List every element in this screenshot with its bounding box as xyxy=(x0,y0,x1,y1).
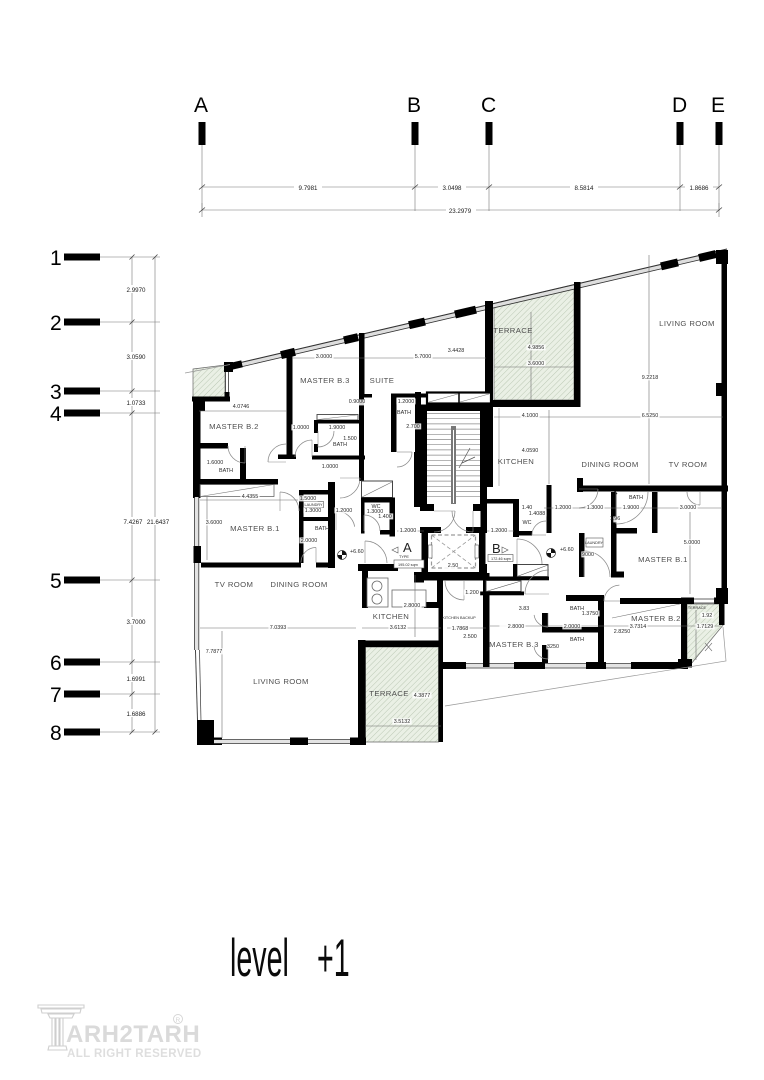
svg-text:2: 2 xyxy=(50,312,62,335)
svg-text:MASTER B.1: MASTER B.1 xyxy=(638,555,688,564)
svg-text:MASTER B.3: MASTER B.3 xyxy=(300,376,350,385)
svg-text:1.7129: 1.7129 xyxy=(697,624,714,630)
svg-text:5.0000: 5.0000 xyxy=(684,540,701,546)
svg-text:21.6437: 21.6437 xyxy=(147,519,170,526)
svg-text:MASTER B.1: MASTER B.1 xyxy=(230,524,280,533)
svg-text:TERRACE: TERRACE xyxy=(688,606,707,610)
svg-text:ALL RIGHT RESERVED: ALL RIGHT RESERVED xyxy=(67,1048,202,1060)
svg-text:2.50: 2.50 xyxy=(448,563,459,569)
svg-text:BATH: BATH xyxy=(397,410,411,416)
svg-text:4.0746: 4.0746 xyxy=(233,404,250,410)
svg-text:172.46 sqm: 172.46 sqm xyxy=(491,557,511,561)
svg-text:1.400: 1.400 xyxy=(378,514,392,520)
svg-text:7: 7 xyxy=(50,684,62,707)
svg-text:MASTER B.2: MASTER B.2 xyxy=(209,422,259,431)
svg-text:ARH2TARH: ARH2TARH xyxy=(66,1021,200,1048)
svg-text:8: 8 xyxy=(50,722,62,745)
svg-text:1.92: 1.92 xyxy=(702,613,713,619)
svg-text:DINING ROOM: DINING ROOM xyxy=(581,460,638,469)
svg-text:1.9000: 1.9000 xyxy=(623,505,640,511)
svg-text:4.3877: 4.3877 xyxy=(414,693,431,699)
svg-text:1.6886: 1.6886 xyxy=(127,711,146,718)
svg-text:KITCHEN BACKUP: KITCHEN BACKUP xyxy=(442,616,476,620)
svg-text:1.200: 1.200 xyxy=(465,590,479,596)
svg-text:7.0393: 7.0393 xyxy=(270,625,287,631)
svg-text:4.4355: 4.4355 xyxy=(242,494,259,500)
svg-text:5.7000: 5.7000 xyxy=(415,354,432,360)
svg-text:1.8686: 1.8686 xyxy=(690,185,709,192)
svg-text:TV ROOM: TV ROOM xyxy=(215,580,254,589)
svg-text:195.02 sqm: 195.02 sqm xyxy=(398,563,418,567)
svg-text:SUITE: SUITE xyxy=(370,376,395,385)
svg-text:TYPE: TYPE xyxy=(399,555,409,559)
svg-text:KITCHEN: KITCHEN xyxy=(373,612,410,621)
svg-text:3.0000: 3.0000 xyxy=(316,354,333,360)
svg-text:3.7314: 3.7314 xyxy=(630,624,647,630)
svg-text:4: 4 xyxy=(50,403,62,426)
svg-text:BATH: BATH xyxy=(570,606,584,612)
svg-text:8.5814: 8.5814 xyxy=(575,185,594,192)
svg-text:+6.60: +6.60 xyxy=(350,549,364,555)
svg-text:A: A xyxy=(403,540,412,555)
svg-text:0.9000: 0.9000 xyxy=(349,399,366,405)
svg-text:KITCHEN: KITCHEN xyxy=(498,457,535,466)
svg-text:WC: WC xyxy=(372,504,381,510)
svg-text:LIVING ROOM: LIVING ROOM xyxy=(253,677,309,686)
svg-text:6.5250: 6.5250 xyxy=(642,413,659,419)
svg-text:1.7868: 1.7868 xyxy=(452,626,469,632)
svg-text:2.700: 2.700 xyxy=(406,424,420,430)
svg-text:4.1000: 4.1000 xyxy=(522,413,539,419)
svg-text:E: E xyxy=(711,94,725,117)
svg-text:9.7981: 9.7981 xyxy=(299,185,318,192)
svg-text:BATH: BATH xyxy=(629,495,643,501)
svg-text:LAUNDRY: LAUNDRY xyxy=(304,503,323,507)
svg-text:9.2218: 9.2218 xyxy=(642,375,659,381)
svg-text:4.9856: 4.9856 xyxy=(528,345,545,351)
svg-text:WC: WC xyxy=(523,520,532,526)
svg-text:1.9000: 1.9000 xyxy=(329,425,346,431)
svg-text:1.0000: 1.0000 xyxy=(322,464,339,470)
svg-text:TERRACE: TERRACE xyxy=(369,689,409,698)
svg-text:1.6991: 1.6991 xyxy=(127,676,146,683)
svg-text:A: A xyxy=(194,94,208,117)
svg-text:B: B xyxy=(407,94,421,117)
svg-text:MASTER B.3: MASTER B.3 xyxy=(489,640,539,649)
svg-text:C: C xyxy=(481,94,496,117)
svg-text:23.2979: 23.2979 xyxy=(449,208,472,215)
svg-text:TV ROOM: TV ROOM xyxy=(669,460,708,469)
svg-text:BATH: BATH xyxy=(333,442,347,448)
svg-text:3.83: 3.83 xyxy=(519,606,530,612)
svg-text:3250: 3250 xyxy=(547,644,559,650)
svg-text:1.5000: 1.5000 xyxy=(300,496,317,502)
svg-text:BATH: BATH xyxy=(570,637,584,643)
svg-text:1.2000: 1.2000 xyxy=(491,528,508,534)
svg-text:1.0733: 1.0733 xyxy=(127,400,146,407)
svg-text:1.0000: 1.0000 xyxy=(293,425,310,431)
svg-text:1.6000: 1.6000 xyxy=(207,460,224,466)
svg-text:1.2000: 1.2000 xyxy=(555,505,572,511)
svg-text:3.6132: 3.6132 xyxy=(390,625,407,631)
svg-text:3: 3 xyxy=(50,381,62,404)
svg-text:2.0000: 2.0000 xyxy=(564,624,581,630)
svg-text:5: 5 xyxy=(50,570,62,593)
svg-text:2.8250: 2.8250 xyxy=(614,629,631,635)
svg-text:1: 1 xyxy=(50,247,62,270)
svg-text:B: B xyxy=(492,541,501,556)
svg-text:D: D xyxy=(672,94,687,117)
svg-text:3.0498: 3.0498 xyxy=(443,185,462,192)
svg-text:1.96: 1.96 xyxy=(610,516,621,522)
svg-text:2.8000: 2.8000 xyxy=(404,603,421,609)
svg-text:3.6000: 3.6000 xyxy=(206,520,223,526)
svg-text:DINING ROOM: DINING ROOM xyxy=(270,580,327,589)
svg-text:+1: +1 xyxy=(317,929,350,989)
svg-text:1.2000: 1.2000 xyxy=(336,508,353,514)
svg-text:3.5132: 3.5132 xyxy=(394,719,411,725)
svg-text:1.3000: 1.3000 xyxy=(305,508,322,514)
svg-text:1.4088: 1.4088 xyxy=(529,511,546,517)
svg-text:3.4428: 3.4428 xyxy=(448,348,465,354)
svg-text:BATH: BATH xyxy=(315,526,329,532)
svg-text:6: 6 xyxy=(50,652,62,675)
svg-text:2.8000: 2.8000 xyxy=(508,624,525,630)
svg-text:9000: 9000 xyxy=(582,552,594,558)
svg-text:2.0000: 2.0000 xyxy=(301,538,318,544)
svg-text:1.2000: 1.2000 xyxy=(400,528,417,534)
svg-text:BATH: BATH xyxy=(219,468,233,474)
svg-text:1.3000: 1.3000 xyxy=(587,505,604,511)
svg-text:7.7877: 7.7877 xyxy=(206,649,223,655)
svg-text:2.500: 2.500 xyxy=(463,634,477,640)
svg-text:level: level xyxy=(230,929,289,989)
svg-text:3.7000: 3.7000 xyxy=(127,619,146,626)
svg-text:2.9970: 2.9970 xyxy=(127,287,146,294)
svg-text:+6.60: +6.60 xyxy=(560,547,574,553)
svg-text:R: R xyxy=(176,1017,181,1024)
svg-text:LIVING ROOM: LIVING ROOM xyxy=(659,319,715,328)
svg-text:TERRACE: TERRACE xyxy=(493,326,533,335)
svg-text:3.0000: 3.0000 xyxy=(680,505,697,511)
svg-text:3.6000: 3.6000 xyxy=(528,361,545,367)
svg-text:1.2000: 1.2000 xyxy=(398,399,415,405)
svg-text:3.0590: 3.0590 xyxy=(127,354,146,361)
svg-text:LAUNDRY: LAUNDRY xyxy=(585,541,604,545)
svg-text:4.0590: 4.0590 xyxy=(522,448,539,454)
svg-text:1.3750: 1.3750 xyxy=(582,611,599,617)
svg-text:MASTER B.2: MASTER B.2 xyxy=(631,614,681,623)
svg-text:7.4267: 7.4267 xyxy=(124,519,143,526)
